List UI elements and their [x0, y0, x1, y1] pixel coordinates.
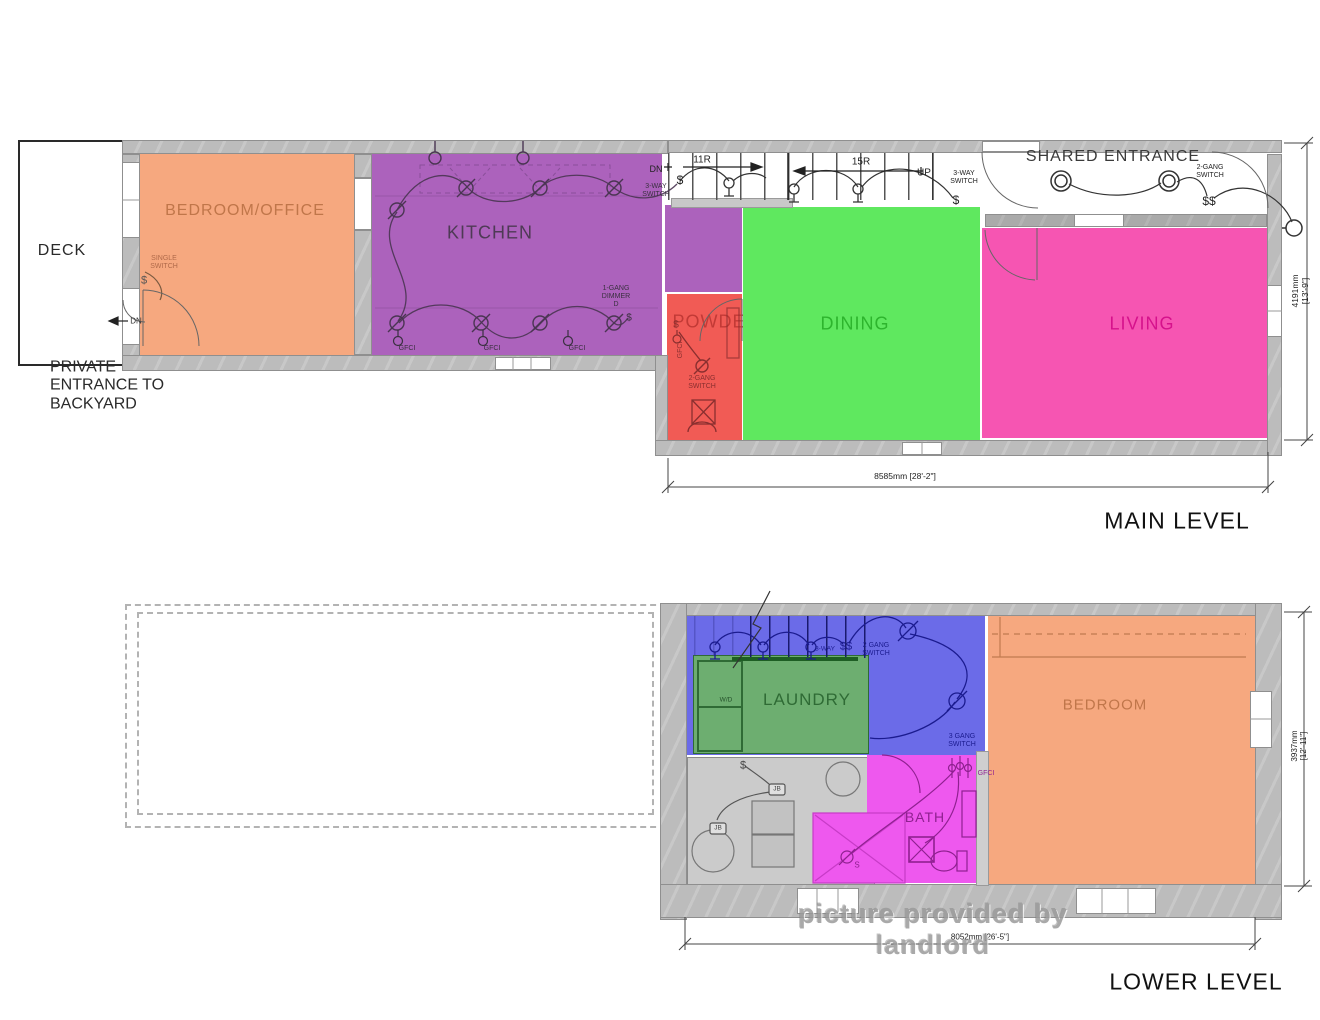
annotation-label: JB: [714, 824, 722, 831]
room-laundry: LAUNDRY: [693, 655, 869, 754]
annotation-label: 3-WAY SWITCH: [950, 170, 978, 186]
lower-stairs-dashed: [694, 611, 748, 656]
room-label-laundry: LAUNDRY: [763, 690, 851, 710]
wall: [660, 603, 687, 920]
room-bedroom-lower: BEDROOM: [988, 612, 1258, 885]
annotation-label: PRIVATE ENTRANCE TO BACKYARD: [50, 358, 164, 413]
annotation-label: GFCI: [677, 342, 685, 359]
room-label-living: LIVING: [1109, 314, 1174, 335]
room-label-bedroom-office: BEDROOM/OFFICE: [165, 202, 325, 220]
shared-entrance-label: SHARED ENTRANCE: [1026, 148, 1200, 166]
annotation-label: 2-GANG SWITCH: [1196, 164, 1224, 180]
wall: [122, 140, 668, 154]
room-kitchen: KITCHEN: [372, 153, 662, 355]
annotation-label: DN: [130, 316, 142, 325]
annotation-label: GFCI: [569, 345, 586, 353]
bedroom-door-opening: [354, 178, 372, 230]
annotation-label: 15R: [852, 156, 870, 168]
lower-level-title: LOWER LEVEL: [1109, 969, 1282, 996]
dimension-label: 3937mm [12'-11"]: [1290, 730, 1308, 761]
room-label-mech: MECH: [752, 811, 791, 825]
switch-symbol: $: [141, 275, 147, 288]
switch-symbol: $: [626, 312, 632, 324]
deck-label: DECK: [38, 242, 86, 260]
floor-plan-canvas: DECK BEDROOM/OFFICE KITCHEN POWDER DININ…: [0, 0, 1320, 1020]
stair-landing-edge: [732, 657, 858, 661]
deck-area: DECK: [18, 140, 127, 366]
window: [902, 442, 942, 455]
interior-wall: [985, 214, 1267, 227]
switch-symbol: $: [953, 194, 960, 208]
room-label-dining: DINING: [821, 314, 890, 335]
room-label-bedroom: BEDROOM: [1063, 697, 1148, 714]
dimension-label: 4191mm [13'-9"]: [1291, 274, 1311, 307]
annotation-label: JB: [773, 785, 781, 792]
switch-symbol: $: [677, 174, 684, 188]
annotation-label: 11R: [693, 154, 711, 166]
annotation-label: S: [854, 860, 859, 869]
window: [1250, 691, 1272, 748]
room-dining: DINING: [743, 207, 980, 440]
annotation-label: UP: [917, 167, 931, 179]
room-living: LIVING: [982, 228, 1267, 438]
annotation-label: GFCI: [484, 345, 501, 353]
switch-symbol: $: [740, 760, 746, 773]
window: [1267, 285, 1282, 337]
annotation-label: 1-GANG DIMMER D: [602, 285, 630, 309]
room-bath: BATH: [867, 755, 977, 883]
room-label-kitchen: KITCHEN: [447, 223, 533, 244]
crawlspace-outline-inner: [137, 612, 654, 815]
switch-symbol: $: [673, 319, 679, 331]
annotation-label: 3 GANG SWITCH: [948, 733, 976, 749]
main-stairs-landing: [672, 199, 792, 207]
annotation-label: 2 GANG SWITCH: [862, 642, 890, 658]
washer-dryer-divider: [697, 706, 741, 708]
annotation-label: DN: [650, 164, 663, 174]
room-label-bath: BATH: [905, 809, 945, 825]
switch-symbol: $$: [840, 641, 852, 654]
annotation-label: SINGLE SWITCH: [150, 255, 178, 271]
interior-wall: [354, 230, 372, 355]
watermark-text: picture provided by landlord: [740, 899, 1127, 961]
window: [495, 357, 551, 370]
annotation-label: 2-GANG SWITCH: [688, 375, 716, 391]
annotation-label: GFCI: [399, 345, 416, 353]
annotation-label: 3-WAY SWITCH: [642, 183, 670, 199]
annotation-label: GFCI: [978, 770, 995, 778]
interior-wall: [354, 154, 372, 178]
window: [122, 162, 140, 238]
wall: [660, 603, 1282, 616]
switch-symbol: $$: [1202, 195, 1215, 209]
annotation-label: 3-WAY: [815, 645, 835, 652]
main-level-title: MAIN LEVEL: [1104, 508, 1250, 535]
wall: [655, 440, 1282, 456]
living-door-opening: [1074, 214, 1124, 227]
dimension-label: 8585mm [28'-2"]: [874, 472, 936, 482]
wall: [122, 355, 668, 371]
annotation-label: W/D: [720, 696, 733, 703]
hallway-top-of-stairs: [665, 205, 742, 292]
wall: [1255, 603, 1282, 920]
room-powder: POWDER: [667, 294, 742, 440]
lower-stairs: [750, 611, 872, 658]
